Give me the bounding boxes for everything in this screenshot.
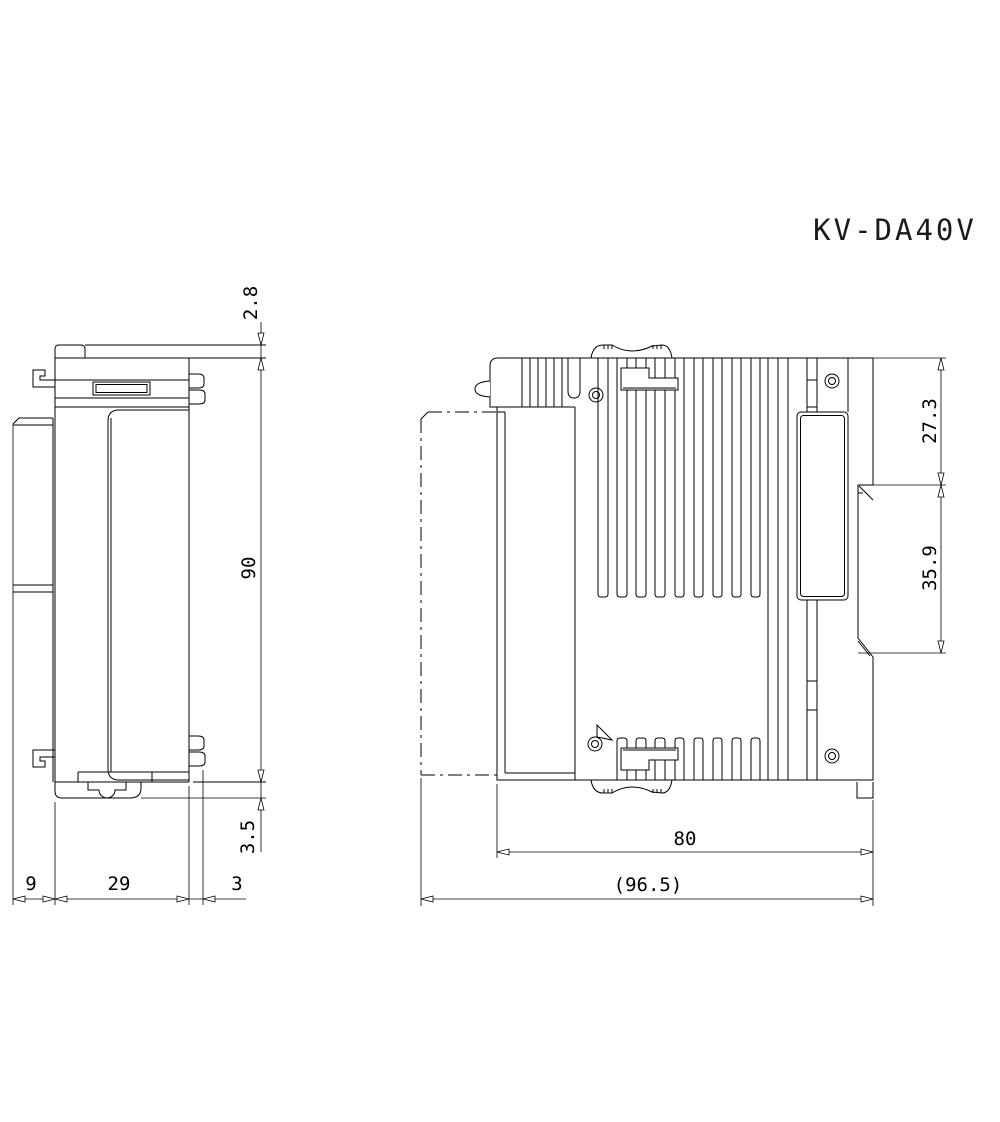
front-slot-inner <box>96 385 147 393</box>
dim-body-depth: 80 <box>674 828 697 850</box>
side-bottom-foot <box>857 782 873 798</box>
dim-body-width: 29 <box>108 873 131 895</box>
dim-overall-depth: (96.5) <box>614 874 683 896</box>
side-phantom-terminal-block <box>421 412 497 775</box>
arrow <box>258 358 264 370</box>
front-upper-left-hook <box>33 370 55 387</box>
dim-top-to-rail: 27.3 <box>919 398 941 444</box>
front-slot-outer <box>93 382 150 395</box>
dim-terminal-cover-width: 9 <box>25 873 36 895</box>
arrow <box>938 473 944 485</box>
front-inner-cover <box>108 410 189 780</box>
drawing-sheet: KV-DA40V <box>0 0 1000 1122</box>
front-right-tab-3 <box>189 736 204 750</box>
arrow <box>938 641 944 653</box>
arrow <box>258 798 264 810</box>
side-view <box>421 345 873 798</box>
arrow <box>861 849 873 855</box>
side-lock-knob <box>475 381 490 397</box>
side-top-bump <box>591 345 672 358</box>
dimension-drawing: KV-DA40V <box>0 0 1000 1122</box>
dim-rail-section: 35.9 <box>919 545 941 591</box>
side-bottom-bump <box>591 780 672 793</box>
arrow <box>203 896 215 902</box>
arrow <box>55 896 67 902</box>
arrow <box>258 770 264 782</box>
front-top-tab <box>55 345 266 358</box>
dim-top-tab-height: 2.8 <box>240 286 262 320</box>
arrow <box>861 896 873 902</box>
arrow <box>421 896 433 902</box>
arrow <box>938 485 944 497</box>
front-right-tab-1 <box>189 374 204 388</box>
front-view-dimensions: 2.8 90 3.5 9 29 3 <box>13 286 266 905</box>
dim-side-tab-depth: 3 <box>231 873 242 895</box>
side-slide-cover <box>797 412 848 600</box>
arrow <box>258 333 264 345</box>
arrow <box>43 896 55 902</box>
arrow <box>13 896 25 902</box>
front-right-tab-2 <box>189 390 205 404</box>
din-rail-upper-pawl <box>858 486 873 500</box>
dim-din-hook-offset: 3.5 <box>237 820 259 854</box>
front-lower-left-hook <box>33 750 55 767</box>
arrow <box>497 849 509 855</box>
front-view <box>13 345 266 798</box>
front-right-tab-4 <box>189 752 205 766</box>
arrow <box>177 896 189 902</box>
model-title: KV-DA40V <box>813 213 977 247</box>
front-terminal-cover <box>13 418 53 782</box>
arrow <box>938 358 944 370</box>
dim-body-height: 90 <box>238 557 260 580</box>
front-latch-notch <box>88 782 126 798</box>
